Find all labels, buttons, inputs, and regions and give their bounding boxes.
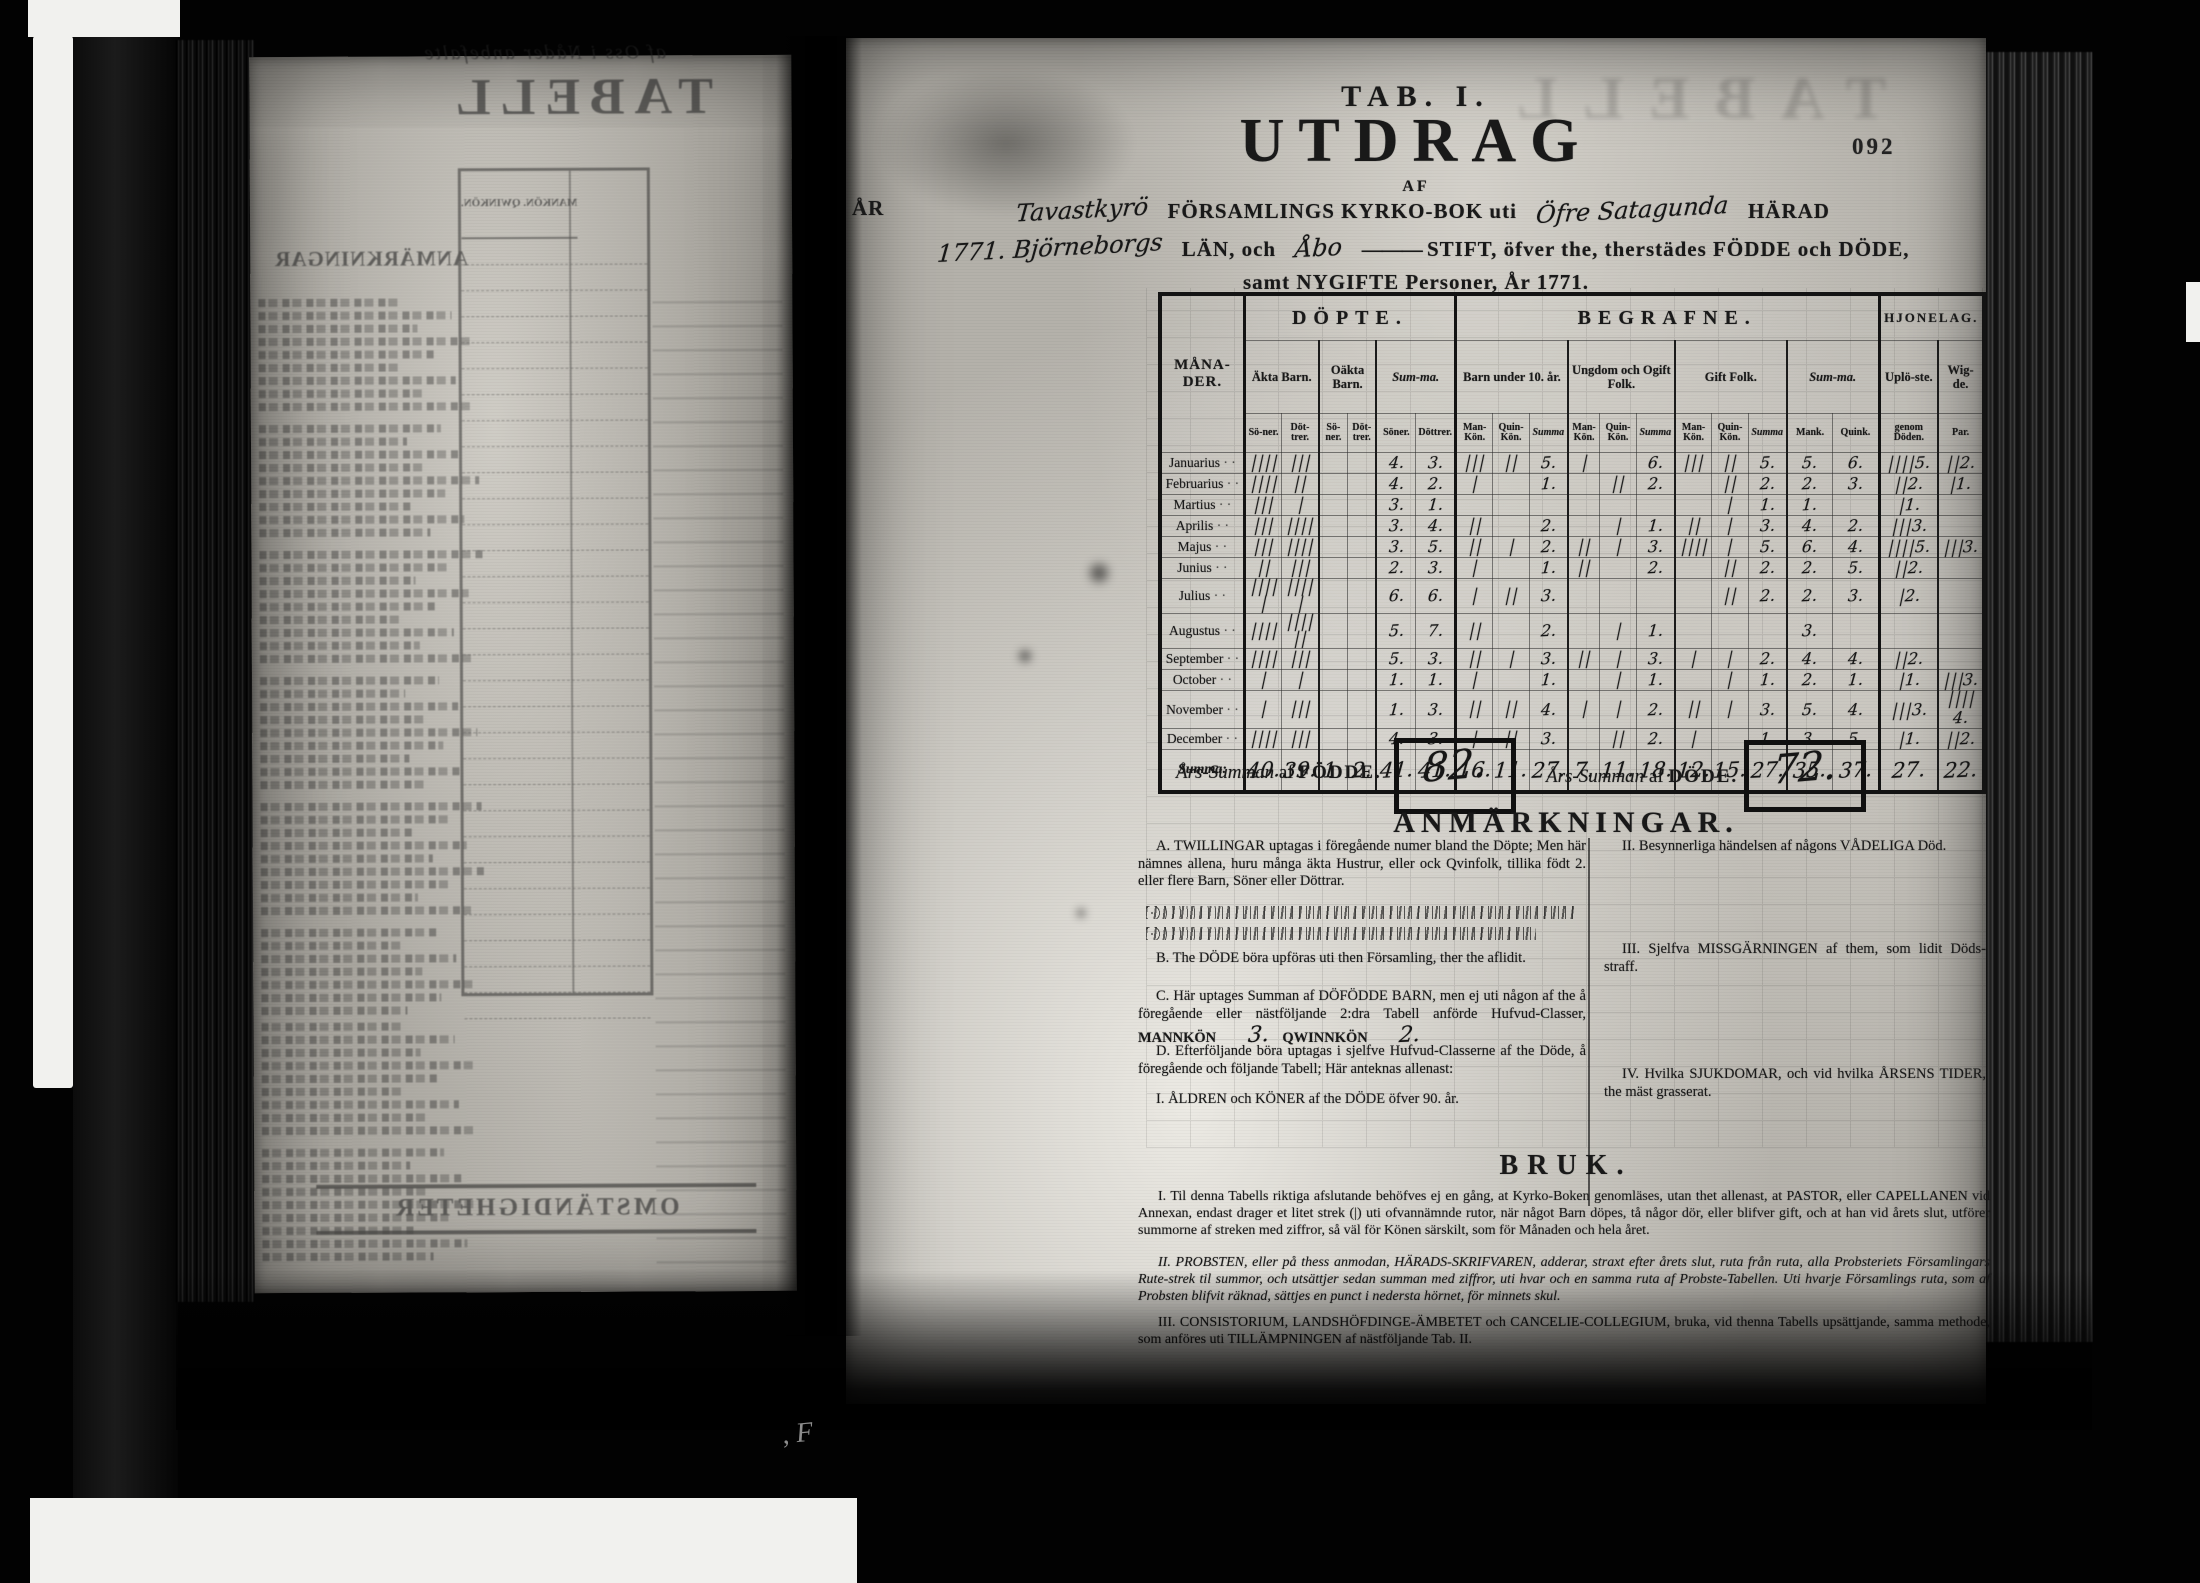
table-cell: 3. bbox=[1416, 649, 1456, 670]
table-cell: 1. bbox=[1416, 670, 1456, 691]
table-cell bbox=[1319, 691, 1348, 729]
table-cell bbox=[1712, 614, 1748, 649]
ghost-text-line bbox=[262, 1088, 406, 1097]
table-cell bbox=[1319, 579, 1348, 614]
column-leaf: Summa bbox=[1636, 414, 1675, 453]
table-cell: || bbox=[1455, 537, 1492, 558]
table-cell: 2. bbox=[1636, 474, 1675, 495]
fodde-sum-box: 82. bbox=[1394, 738, 1516, 814]
table-cell: 3. bbox=[1376, 495, 1415, 516]
table-cell: 1. bbox=[1636, 516, 1675, 537]
table-cell: |1. bbox=[1879, 670, 1938, 691]
handwritten-number: 4. bbox=[1802, 649, 1819, 669]
handwritten-number: 6. bbox=[1427, 586, 1444, 606]
ghost-text-line bbox=[262, 1061, 474, 1070]
title-line1-text: FÖRSAMLINGS KYRKO-BOK uti bbox=[1168, 199, 1517, 223]
table-cell: 3. bbox=[1636, 537, 1675, 558]
book-page-stack-left bbox=[176, 40, 254, 1302]
tally-marks: ||| bbox=[1889, 701, 1914, 721]
ghost-table-row bbox=[462, 342, 648, 369]
tally-marks: || bbox=[1721, 474, 1739, 494]
table-cell: 1. bbox=[1529, 670, 1568, 691]
handwritten-number: 3. bbox=[1388, 495, 1405, 515]
tally-marks: | bbox=[1294, 670, 1305, 690]
handwritten-number: 1. bbox=[1388, 670, 1405, 690]
handwritten-number: 1. bbox=[1647, 670, 1664, 690]
tally-marks: | bbox=[1258, 699, 1269, 719]
ghost-text-line bbox=[261, 828, 414, 837]
table-cell: 5. bbox=[1748, 453, 1787, 474]
tally-marks: | bbox=[1612, 516, 1623, 536]
table-cell: |1. bbox=[1938, 474, 1984, 495]
column-subgroup: Ungdom och Ogift Folk. bbox=[1568, 341, 1675, 414]
table-cell: 3. bbox=[1416, 453, 1456, 474]
handwritten-harad: Öfre Satagunda bbox=[1535, 191, 1730, 229]
table-cell: 4. bbox=[1376, 453, 1415, 474]
film-white-bottom bbox=[30, 1498, 857, 1583]
table-cell: |||| bbox=[1244, 649, 1281, 670]
ghost-table-row bbox=[461, 316, 647, 343]
ghost-text-line bbox=[259, 389, 422, 398]
table-cell: 3. bbox=[1376, 537, 1415, 558]
tally-marks: |||| bbox=[1885, 538, 1917, 558]
handwritten-number: 2. bbox=[1540, 516, 1557, 536]
ghost-table-row bbox=[461, 290, 647, 317]
month-label: Majus bbox=[1160, 537, 1244, 558]
month-label: Augustus bbox=[1160, 614, 1244, 649]
table-cell: || bbox=[1568, 537, 1600, 558]
annotation-item-II: II. Besynnerliga händelsen af någons VÅD… bbox=[1604, 838, 1946, 856]
handwritten-number: 2. bbox=[1759, 558, 1776, 578]
column-leaf: Döttrer. bbox=[1416, 414, 1456, 453]
ghost-text-line bbox=[261, 867, 486, 876]
table-cell: ||| bbox=[1282, 691, 1319, 729]
table-cell: 2. bbox=[1636, 691, 1675, 729]
table-cell bbox=[1675, 579, 1712, 614]
column-subgroup: Oäkta Barn. bbox=[1319, 341, 1377, 414]
table-cell bbox=[1938, 614, 1984, 649]
table-cell: | bbox=[1282, 670, 1319, 691]
tally-marks: || bbox=[1291, 629, 1309, 649]
header-subgroup-row: Äkta Barn.Oäkta Barn.Sum-ma.Barn under 1… bbox=[1160, 341, 1984, 414]
handwritten-number: 2. bbox=[1959, 453, 1976, 473]
handwritten-number: 1. bbox=[1847, 670, 1864, 690]
table-cell bbox=[1529, 495, 1568, 516]
handwritten-number: 3. bbox=[1427, 699, 1444, 719]
table-cell: | bbox=[1712, 649, 1748, 670]
column-leaf: Man-Kön. bbox=[1675, 414, 1712, 453]
table-cell: | bbox=[1600, 691, 1636, 729]
tally-marks: || bbox=[1721, 453, 1739, 473]
tally-marks: |||| bbox=[1284, 516, 1316, 536]
annotation-item-IV: IV. Hvilka SJUKDOMAR, och vid hvilka ÅRS… bbox=[1604, 1066, 1986, 1101]
ghost-table-row bbox=[464, 914, 650, 941]
table-cell: 7. bbox=[1416, 614, 1456, 649]
table-cell: | bbox=[1568, 691, 1600, 729]
handwritten-number: 1. bbox=[1956, 474, 1973, 494]
handwritten-number: 5. bbox=[1759, 453, 1776, 473]
table-cell: | bbox=[1282, 495, 1319, 516]
table-cell: 5. bbox=[1748, 537, 1787, 558]
handwritten-number: 1. bbox=[1759, 670, 1776, 690]
table-cell: 1. bbox=[1529, 558, 1568, 579]
table-cell: || bbox=[1493, 579, 1529, 614]
tally-marks: |||| bbox=[1248, 729, 1280, 749]
tally-marks: |||| bbox=[1678, 537, 1710, 557]
table-cell: ||||| bbox=[1244, 579, 1281, 614]
table-cell bbox=[1348, 516, 1377, 537]
month-label: Februarius bbox=[1160, 474, 1244, 495]
column-leaf: Par. bbox=[1938, 414, 1984, 453]
table-cell bbox=[1568, 614, 1600, 649]
table-cell bbox=[1600, 558, 1636, 579]
tally-marks: | bbox=[1578, 453, 1589, 473]
ghost-text-line bbox=[260, 754, 409, 763]
handwritten-number: 1. bbox=[1647, 621, 1664, 641]
table-cell bbox=[1319, 516, 1348, 537]
handwritten-number: 1. bbox=[1427, 670, 1444, 690]
table-cell bbox=[1938, 649, 1984, 670]
handwritten-number: 2. bbox=[1847, 516, 1864, 536]
table-cell: | bbox=[1712, 670, 1748, 691]
table-cell bbox=[1319, 495, 1348, 516]
ghost-text-line bbox=[263, 1252, 434, 1261]
table-cell: | bbox=[1600, 516, 1636, 537]
ghost-heading: ANMÄRKNINGAR bbox=[256, 246, 486, 272]
handwritten-number: 2. bbox=[1647, 558, 1664, 578]
table-cell: || bbox=[1455, 691, 1492, 729]
column-subgroup: Wig-de. bbox=[1938, 341, 1984, 414]
table-cell: 4. bbox=[1787, 516, 1833, 537]
table-cell bbox=[1636, 579, 1675, 614]
table-cell: || bbox=[1712, 453, 1748, 474]
table-cell: ||| bbox=[1244, 495, 1281, 516]
table-cell: ||| bbox=[1282, 649, 1319, 670]
ghost-text-line bbox=[262, 1100, 459, 1109]
tally-marks: || bbox=[1254, 558, 1272, 578]
handwritten-number: 2. bbox=[1388, 558, 1405, 578]
tally-marks: |||| bbox=[1945, 689, 1977, 709]
ghost-topline: af Oss i Nåder anbefalte bbox=[309, 41, 779, 66]
table-cell bbox=[1493, 558, 1529, 579]
tally-marks: || bbox=[1502, 453, 1520, 473]
table-cell: ||| bbox=[1282, 729, 1319, 750]
month-label: Martius bbox=[1160, 495, 1244, 516]
table-cell: |||| bbox=[1282, 537, 1319, 558]
table-cell: |||| bbox=[1244, 729, 1281, 750]
tally-marks: | bbox=[1724, 537, 1735, 557]
handwritten-number: 2. bbox=[1959, 729, 1976, 749]
table-cell: | bbox=[1455, 558, 1492, 579]
table-cell: | bbox=[1600, 614, 1636, 649]
table-cell: ||2. bbox=[1879, 558, 1938, 579]
table-cell: |||| bbox=[1244, 614, 1281, 649]
tally-marks: |||| bbox=[1284, 537, 1316, 557]
ghost-text-line bbox=[260, 563, 450, 572]
table-cell bbox=[1348, 691, 1377, 729]
column-leaf: Döt-trer. bbox=[1348, 414, 1377, 453]
handwritten-number: 7. bbox=[1427, 621, 1444, 641]
table-cell bbox=[1348, 729, 1377, 750]
table-cell: |1. bbox=[1879, 495, 1938, 516]
film-white-mark bbox=[2186, 282, 2200, 342]
tally-marks: | bbox=[1469, 670, 1480, 690]
tally-marks: ||| bbox=[1287, 699, 1312, 719]
tally-marks: || bbox=[1684, 516, 1702, 536]
ghost-text-line bbox=[260, 641, 420, 650]
table-cell bbox=[1348, 579, 1377, 614]
table-cell: | bbox=[1455, 474, 1492, 495]
table-cell: |1. bbox=[1879, 729, 1938, 750]
annotation-item-D: D. Efterföljande böra uptagas i sjelfve … bbox=[1138, 1043, 1586, 1078]
ghost-text-line bbox=[262, 1113, 425, 1122]
ghost-text-line bbox=[262, 1048, 421, 1057]
handwritten-number: 1. bbox=[1647, 516, 1664, 536]
tally-marks: || bbox=[1502, 586, 1520, 606]
ghost-text-line bbox=[260, 589, 469, 598]
table-head: MÅNA-DER.DÖPTE.BEGRAFNE.HJONELAG.Äkta Ba… bbox=[1160, 294, 1984, 453]
tally-marks: ||| bbox=[1251, 537, 1276, 557]
handwritten-number: 2. bbox=[1647, 474, 1664, 494]
ghost-text-line bbox=[261, 841, 467, 850]
handwritten-number: 2. bbox=[1759, 649, 1776, 669]
month-label: October bbox=[1160, 670, 1244, 691]
tally-marks: || bbox=[1684, 699, 1702, 719]
tally-marks: ||| bbox=[1287, 649, 1312, 669]
ghost-footer: OMSTÄNDIGHETER bbox=[316, 1183, 756, 1235]
ghost-text-line bbox=[260, 780, 428, 789]
film-white-strip bbox=[33, 36, 73, 1088]
ghost-text-line bbox=[261, 967, 422, 976]
fodde-label-word: FÖDDE. bbox=[1298, 762, 1381, 783]
table-cell bbox=[1568, 474, 1600, 495]
handwritten-number: 2. bbox=[1647, 699, 1664, 719]
ghost-table-row bbox=[463, 706, 649, 733]
ghost-text-line bbox=[261, 906, 471, 915]
tally-marks: || bbox=[1466, 699, 1484, 719]
table-cell: 5. bbox=[1416, 537, 1456, 558]
column-leaf: Quin-Kön. bbox=[1493, 414, 1529, 453]
bruk-paragraph-1: I. Til denna Tabells riktiga afslutande … bbox=[1138, 1188, 1990, 1239]
table-cell bbox=[1319, 729, 1348, 750]
table-cell: | bbox=[1675, 729, 1712, 750]
table-cell: | bbox=[1493, 649, 1529, 670]
annotation-item-I: I. ÅLDREN och KÖNER af the DÖDE öfver 90… bbox=[1138, 1091, 1459, 1109]
handwritten-number: 4. bbox=[1427, 516, 1444, 536]
column-leaf: Man-Kön. bbox=[1568, 414, 1600, 453]
handwritten-number: 4. bbox=[1540, 699, 1557, 719]
tally-marks: |||| bbox=[1248, 621, 1280, 641]
table-cell: 2. bbox=[1748, 558, 1787, 579]
handwritten-number: 2. bbox=[1540, 537, 1557, 557]
ghost-table-row bbox=[462, 446, 648, 473]
handwritten-number: 3. bbox=[1802, 621, 1819, 641]
tally-marks: | bbox=[1578, 699, 1589, 719]
table-cell: | bbox=[1712, 516, 1748, 537]
handwritten-number: 5. bbox=[1914, 453, 1931, 473]
table-cell: |2. bbox=[1879, 579, 1938, 614]
column-leaf: Quink. bbox=[1833, 414, 1879, 453]
fodde-sum-label: Års-Summan af FÖDDE. bbox=[1176, 762, 1382, 784]
ghost-text-line bbox=[262, 1126, 478, 1135]
table-cell: | bbox=[1675, 649, 1712, 670]
ghost-text-line bbox=[262, 1174, 463, 1183]
ghost-text-line bbox=[259, 350, 437, 359]
handwritten-number: 2. bbox=[1802, 558, 1819, 578]
ghost-table-row bbox=[464, 888, 650, 915]
ghost-text-line bbox=[261, 893, 418, 902]
table-cell: || bbox=[1675, 516, 1712, 537]
table-cell: 3. bbox=[1748, 691, 1787, 729]
ghost-table-row bbox=[464, 966, 650, 993]
handwritten-number: 1. bbox=[1904, 495, 1921, 515]
table-cell bbox=[1319, 453, 1348, 474]
table-row: Januarius|||||||4.3.|||||5.|6.|||||5.5.6… bbox=[1160, 453, 1984, 474]
table-cell: 5. bbox=[1529, 453, 1568, 474]
handwritten-number: 5. bbox=[1914, 537, 1931, 557]
handwritten-number: 5. bbox=[1540, 453, 1557, 473]
handwritten-number: 3. bbox=[1759, 516, 1776, 536]
ghost-title: TABELL bbox=[369, 67, 789, 128]
tally-marks: | bbox=[1724, 495, 1735, 515]
handwritten-number: 1. bbox=[1427, 495, 1444, 515]
tally-marks: || bbox=[1291, 474, 1309, 494]
table-cell: 2. bbox=[1376, 558, 1415, 579]
table-cell bbox=[1319, 670, 1348, 691]
tally-marks: | bbox=[1724, 699, 1735, 719]
blank-rule: ——— bbox=[1362, 237, 1422, 261]
book-gutter bbox=[776, 36, 862, 1336]
month-label: Julius bbox=[1160, 579, 1244, 614]
table-cell: 1. bbox=[1787, 495, 1833, 516]
ghost-table-row bbox=[463, 654, 649, 681]
table-cell bbox=[1493, 614, 1529, 649]
summa-cell: 22. bbox=[1938, 750, 1984, 792]
film-white-corner bbox=[28, 0, 180, 37]
table-cell: 1. bbox=[1636, 670, 1675, 691]
table-cell bbox=[1348, 474, 1377, 495]
column-leaf: Sö-ner. bbox=[1244, 414, 1281, 453]
title-line2-end: STIFT, öfver the, therstädes FÖDDE och D… bbox=[1427, 237, 1909, 261]
tally-marks: || bbox=[1609, 729, 1627, 749]
table-cell: 3. bbox=[1748, 516, 1787, 537]
tally-marks: | bbox=[1505, 537, 1516, 557]
ghost-table-row bbox=[464, 810, 650, 837]
table-cell: 4. bbox=[1376, 474, 1415, 495]
tally-marks: || bbox=[1575, 649, 1593, 669]
handwritten-number: 5. bbox=[1802, 699, 1819, 719]
tally-marks: | bbox=[1688, 729, 1699, 749]
annotation-item-C: C. Här uptages Summan af DÖFÖDDE BARN, m… bbox=[1138, 988, 1586, 1050]
tally-marks: || bbox=[1502, 699, 1520, 719]
tally-marks: || bbox=[1575, 537, 1593, 557]
handwritten-number: 3. bbox=[1388, 516, 1405, 536]
ghost-text-line bbox=[259, 489, 445, 498]
table-cell bbox=[1493, 474, 1529, 495]
ghost-text-line bbox=[261, 942, 403, 951]
handwritten-number: 1. bbox=[1388, 699, 1405, 719]
table-cell: 6. bbox=[1416, 579, 1456, 614]
table-cell: 1. bbox=[1748, 670, 1787, 691]
ghost-text-line bbox=[262, 1074, 440, 1083]
table-cell: | bbox=[1568, 453, 1600, 474]
ghost-text-line bbox=[259, 364, 403, 373]
table-row: October||1.1.|1.|1.|1.2.1.|1.|||3. bbox=[1160, 670, 1984, 691]
table-cell: 2. bbox=[1748, 474, 1787, 495]
table-cell: 1. bbox=[1529, 474, 1568, 495]
tally-marks: | bbox=[1469, 474, 1480, 494]
table-cell: 3. bbox=[1416, 691, 1456, 729]
summa-cell: 27. bbox=[1879, 750, 1938, 792]
ghost-text-line bbox=[260, 628, 454, 637]
table-cell: ||| bbox=[1455, 453, 1492, 474]
handwritten-number: 3. bbox=[1540, 586, 1557, 606]
ghost-table-row bbox=[461, 238, 647, 265]
ghost-text-line bbox=[259, 402, 475, 411]
table-cell: || bbox=[1712, 579, 1748, 614]
tally-marks: ||| bbox=[1889, 517, 1914, 537]
ghost-text-line bbox=[259, 424, 441, 433]
tally-marks: || bbox=[1466, 537, 1484, 557]
table-cell: 2. bbox=[1529, 614, 1568, 649]
left-page-bleedthrough: af Oss i Nåder anbefalte TABELL ANMÄRKNI… bbox=[249, 55, 796, 1293]
tally-marks: | bbox=[1612, 649, 1623, 669]
column-leaf: Man-Kön. bbox=[1455, 414, 1492, 453]
ghost-dotted-column bbox=[652, 295, 786, 1286]
title-line3-text: samt NYGIFTE Personer, År 1771. bbox=[1243, 270, 1589, 294]
ghost-text-line bbox=[261, 993, 441, 1002]
table-cell: || bbox=[1244, 558, 1281, 579]
table-cell: 5. bbox=[1376, 649, 1415, 670]
handwritten-number: 2. bbox=[1802, 474, 1819, 494]
table-cell bbox=[1833, 495, 1879, 516]
table-cell bbox=[1600, 495, 1636, 516]
table-cell: 1. bbox=[1636, 614, 1675, 649]
tally-marks: ||| bbox=[1681, 453, 1706, 473]
handwritten-number: 4. bbox=[1952, 708, 1969, 728]
handwritten-number: 1. bbox=[1904, 670, 1921, 690]
left-page: af Oss i Nåder anbefalte TABELL ANMÄRKNI… bbox=[249, 55, 796, 1293]
ghost-table-row bbox=[462, 498, 648, 525]
table-cell: 2. bbox=[1748, 649, 1787, 670]
table-cell bbox=[1493, 516, 1529, 537]
table-cell bbox=[1319, 614, 1348, 649]
table-cell bbox=[1568, 579, 1600, 614]
column-subgroup: Sum-ma. bbox=[1787, 341, 1879, 414]
table-cell: 5. bbox=[1376, 614, 1415, 649]
table-cell: 3. bbox=[1376, 516, 1415, 537]
table-cell bbox=[1636, 495, 1675, 516]
ghost-table-row bbox=[463, 784, 649, 811]
tally-marks: |||| bbox=[1248, 474, 1280, 494]
fodde-sum-value: 82. bbox=[1422, 740, 1488, 792]
handwritten-number: 6. bbox=[1647, 453, 1664, 473]
ghost-table-row bbox=[464, 836, 650, 863]
table-cell: |||3. bbox=[1879, 516, 1938, 537]
ghost-text-line bbox=[260, 616, 401, 625]
stats-table: MÅNA-DER.DÖPTE.BEGRAFNE.HJONELAG.Äkta Ba… bbox=[1158, 292, 1986, 794]
month-label: Januarius bbox=[1160, 453, 1244, 474]
table-cell bbox=[1568, 729, 1600, 750]
handwritten-number: 2. bbox=[1907, 474, 1924, 494]
table-cell: 4. bbox=[1416, 516, 1456, 537]
tally-marks: || bbox=[1466, 649, 1484, 669]
ghost-table-row bbox=[462, 394, 648, 421]
tally-marks: | bbox=[1612, 699, 1623, 719]
handwritten-number: 5. bbox=[1427, 537, 1444, 557]
ghost-text-line bbox=[261, 854, 433, 863]
tally-marks: | bbox=[1505, 649, 1516, 669]
